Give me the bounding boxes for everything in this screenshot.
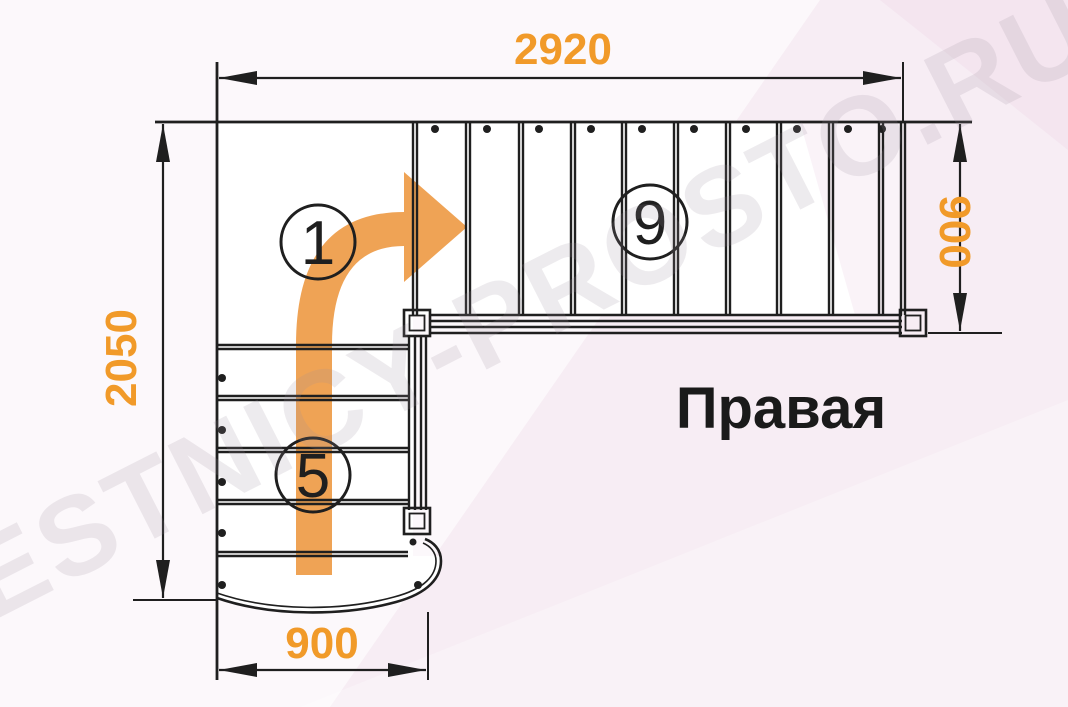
dimension-bottom-value: 900: [285, 619, 358, 668]
orientation-label: Правая: [676, 376, 886, 441]
step-marker-1-number: 1: [301, 209, 335, 278]
bracket-bolt-dot: [410, 539, 417, 546]
dimension-left-value: 2050: [97, 309, 146, 407]
staircase-plan-diagram: 1 5 9 2920 2050 900 900: [0, 0, 1068, 707]
dimension-top-value: 2920: [514, 25, 612, 74]
dimension-right-value: 900: [930, 195, 979, 268]
